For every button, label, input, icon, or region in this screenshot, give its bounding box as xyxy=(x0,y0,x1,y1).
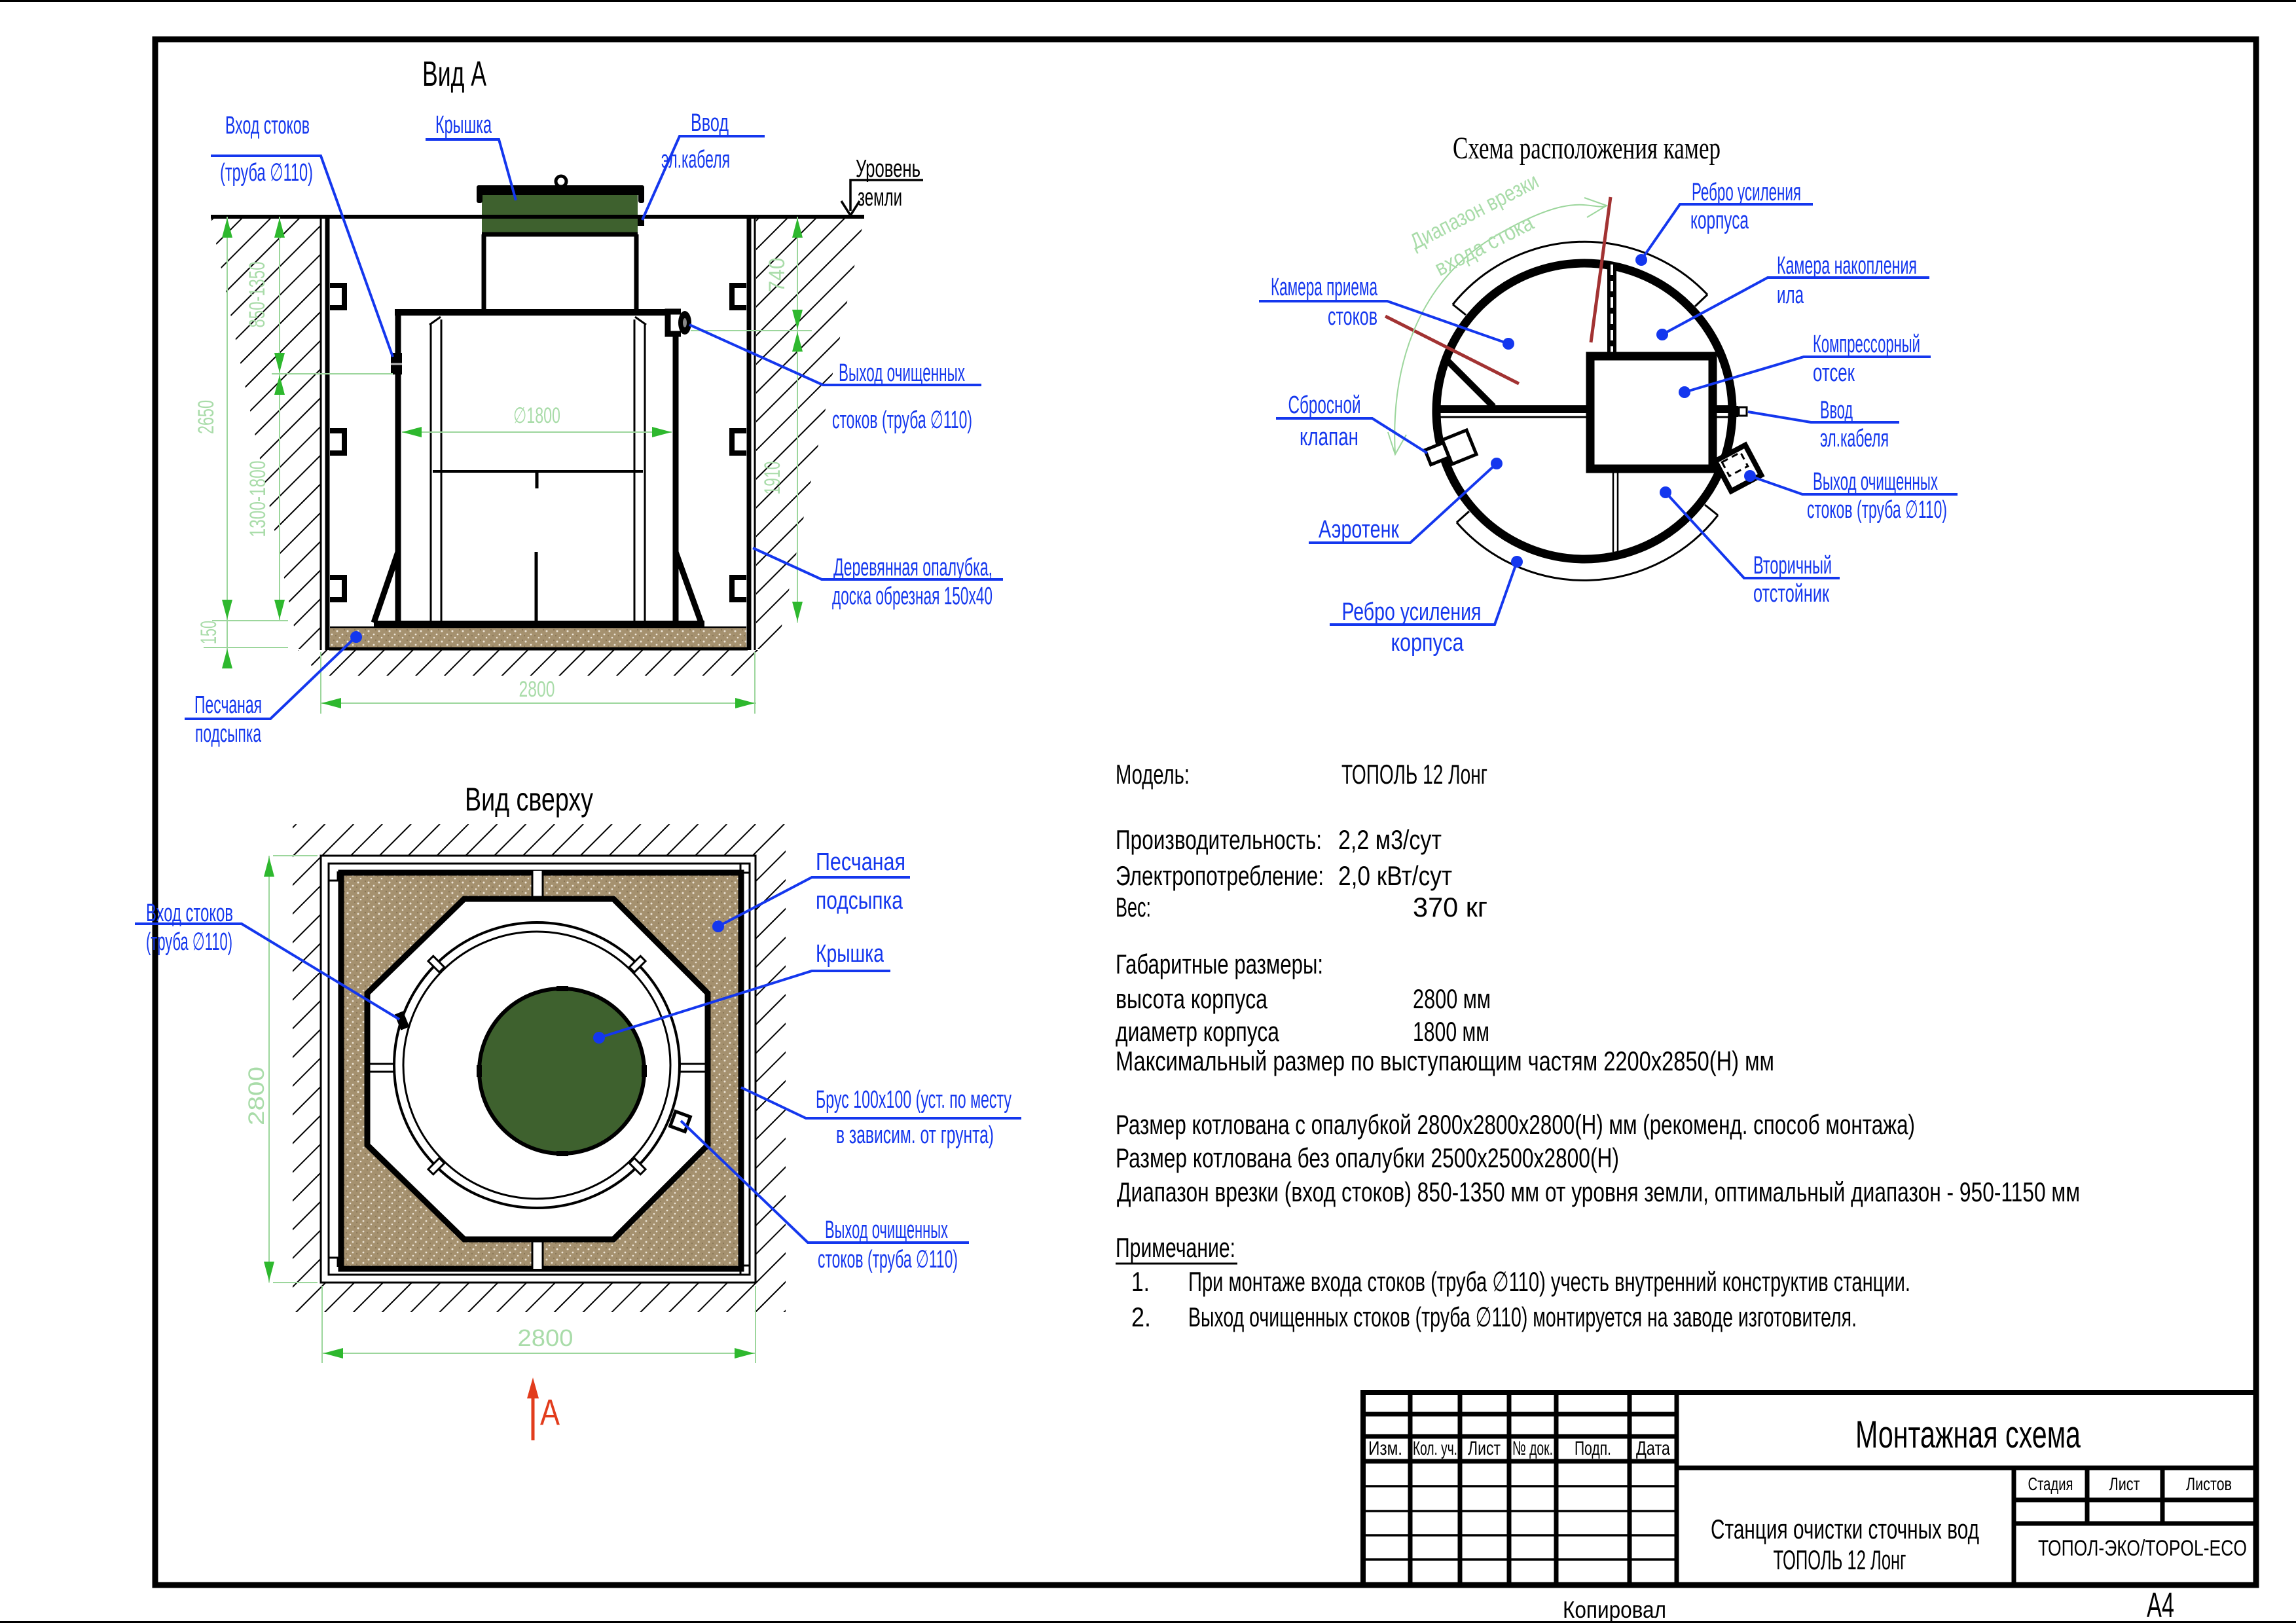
svg-text:740: 740 xyxy=(765,258,790,293)
svg-text:Аэротенк: Аэротенк xyxy=(1319,516,1399,543)
svg-text:Камера накопления: Камера накопления xyxy=(1777,252,1917,280)
svg-text:1910: 1910 xyxy=(760,462,785,495)
svg-text:Ввод: Ввод xyxy=(691,109,729,137)
svg-text:Вход стоков: Вход стоков xyxy=(225,112,310,139)
svg-text:2,2 м3/сут: 2,2 м3/сут xyxy=(1338,824,1442,855)
svg-text:подсыпка: подсыпка xyxy=(195,720,262,748)
svg-text:Изм.: Изм. xyxy=(1368,1438,1402,1459)
svg-text:Модель:: Модель: xyxy=(1116,759,1190,790)
svg-text:высота корпуса: высота корпуса xyxy=(1116,983,1267,1014)
svg-text:Сбросной: Сбросной xyxy=(1288,392,1361,419)
svg-text:Ребро усиления: Ребро усиления xyxy=(1692,179,1801,206)
svg-text:2800: 2800 xyxy=(244,1067,269,1125)
svg-text:А4: А4 xyxy=(2147,1586,2174,1623)
svg-text:Вес:: Вес: xyxy=(1116,892,1151,922)
svg-text:Монтажная схема: Монтажная схема xyxy=(1855,1413,2081,1456)
svg-text:Примечание:: Примечание: xyxy=(1116,1232,1235,1263)
svg-text:2,0 кВт/сут: 2,0 кВт/сут xyxy=(1338,860,1452,891)
svg-text:Крышка: Крышка xyxy=(816,940,884,968)
svg-text:подсыпка: подсыпка xyxy=(816,887,903,915)
svg-text:эл.кабеля: эл.кабеля xyxy=(1820,425,1889,452)
svg-text:Вторичный: Вторичный xyxy=(1753,552,1832,579)
svg-text:Лист: Лист xyxy=(2109,1474,2140,1494)
svg-text:эл.кабеля: эл.кабеля xyxy=(661,146,730,173)
svg-text:Дата: Дата xyxy=(1636,1438,1670,1459)
svg-text:стоков (труба ∅110): стоков (труба ∅110) xyxy=(1807,496,1947,524)
svg-text:2650: 2650 xyxy=(194,400,219,434)
svg-text:Станция очистки сточных вод: Станция очистки сточных вод xyxy=(1711,1514,1979,1544)
svg-text:корпуса: корпуса xyxy=(1391,629,1465,657)
svg-text:№ док.: № док. xyxy=(1512,1438,1553,1459)
svg-text:Кол. уч.: Кол. уч. xyxy=(1413,1438,1457,1459)
svg-text:850-1350: 850-1350 xyxy=(245,262,270,328)
svg-text:стоков: стоков xyxy=(1328,303,1377,331)
svg-text:Схема расположения камер: Схема расположения камер xyxy=(1453,131,1721,166)
svg-text:земли: земли xyxy=(858,184,902,211)
svg-text:ТОПОЛ-ЭКО/TOPOL-ECO: ТОПОЛ-ЭКО/TOPOL-ECO xyxy=(2038,1536,2247,1561)
svg-text:Лист: Лист xyxy=(1468,1438,1501,1459)
svg-text:в зависим. от грунта): в зависим. от грунта) xyxy=(836,1122,994,1149)
svg-text:Производительность:: Производительность: xyxy=(1116,824,1322,855)
svg-text:Крышка: Крышка xyxy=(435,111,492,139)
svg-text:150: 150 xyxy=(196,621,221,644)
svg-text:Камера приема: Камера приема xyxy=(1271,274,1378,301)
svg-text:Копировал: Копировал xyxy=(1563,1596,1666,1623)
svg-text:Ребро усиления: Ребро усиления xyxy=(1342,598,1482,626)
svg-text:1.: 1. xyxy=(1131,1266,1150,1297)
svg-text:Выход очищенных: Выход очищенных xyxy=(839,359,965,387)
svg-text:Габаритные размеры:: Габаритные размеры: xyxy=(1116,949,1323,979)
svg-text:ила: ила xyxy=(1777,282,1804,309)
svg-text:2.: 2. xyxy=(1131,1302,1151,1332)
svg-text:2800: 2800 xyxy=(519,677,555,702)
svg-text:А: А xyxy=(540,1391,560,1432)
svg-text:клапан: клапан xyxy=(1300,424,1358,451)
svg-text:(труба ∅110): (труба ∅110) xyxy=(220,159,313,187)
svg-text:Выход очищенных стоков (труба: Выход очищенных стоков (труба ∅110) монт… xyxy=(1188,1302,1857,1332)
svg-text:Компрессорный: Компрессорный xyxy=(1813,331,1920,358)
svg-text:стоков (труба ∅110): стоков (труба ∅110) xyxy=(832,407,972,434)
svg-text:Стадия: Стадия xyxy=(2028,1474,2073,1494)
svg-text:Уровень: Уровень xyxy=(856,155,920,183)
svg-text:Ввод: Ввод xyxy=(1820,397,1853,424)
svg-text:Вход стоков: Вход стоков xyxy=(146,900,233,927)
svg-text:При монтаже входа стоков (тру: При монтаже входа стоков (труба ∅110) уч… xyxy=(1188,1266,1910,1297)
svg-text:2800 мм: 2800 мм xyxy=(1413,983,1491,1014)
svg-text:Листов: Листов xyxy=(2186,1474,2232,1494)
svg-text:∅1800: ∅1800 xyxy=(513,403,560,428)
svg-text:отстойник: отстойник xyxy=(1753,580,1829,608)
svg-text:370 кг: 370 кг xyxy=(1413,892,1487,922)
svg-text:Максимальный размер по выступа: Максимальный размер по выступающим частя… xyxy=(1116,1046,1774,1076)
svg-text:Песчаная: Песчаная xyxy=(194,691,262,719)
svg-text:Диапазон врезки (вход стоков): Диапазон врезки (вход стоков) 850-1350 м… xyxy=(1117,1176,2080,1207)
svg-text:Размер котлована с опалубкой 2: Размер котлована с опалубкой 2800х2800х2… xyxy=(1116,1109,1915,1140)
svg-text:Подп.: Подп. xyxy=(1575,1438,1611,1459)
svg-text:Вид А: Вид А xyxy=(422,54,486,94)
svg-text:Деревянная опалубка,: Деревянная опалубка, xyxy=(833,554,993,581)
svg-text:Песчаная: Песчаная xyxy=(816,848,905,876)
svg-text:Брус 100х100 (уст. по месту: Брус 100х100 (уст. по месту xyxy=(816,1086,1011,1114)
svg-text:доска обрезная 150х40: доска обрезная 150х40 xyxy=(832,583,993,610)
svg-text:Выход очищенных: Выход очищенных xyxy=(825,1216,948,1244)
svg-text:2800: 2800 xyxy=(518,1324,574,1351)
svg-text:Вид сверху: Вид сверху xyxy=(465,781,593,818)
svg-text:Электропотребление:: Электропотребление: xyxy=(1116,860,1324,891)
svg-text:корпуса: корпуса xyxy=(1690,207,1749,234)
svg-text:Выход очищенных: Выход очищенных xyxy=(1813,468,1938,496)
svg-text:отсек: отсек xyxy=(1813,359,1855,387)
svg-text:Размер котлована без опалубки: Размер котлована без опалубки 2500х2500х… xyxy=(1116,1142,1619,1173)
svg-text:1800 мм: 1800 мм xyxy=(1413,1016,1489,1047)
svg-text:1300-1800: 1300-1800 xyxy=(246,461,270,538)
svg-text:(труба ∅110): (труба ∅110) xyxy=(146,928,232,956)
svg-text:ТОПОЛЬ 12 Лонг: ТОПОЛЬ 12 Лонг xyxy=(1774,1544,1906,1575)
svg-text:диаметр корпуса: диаметр корпуса xyxy=(1116,1016,1279,1047)
svg-text:стоков (труба ∅110): стоков (труба ∅110) xyxy=(818,1246,958,1273)
svg-text:ТОПОЛЬ 12 Лонг: ТОПОЛЬ 12 Лонг xyxy=(1341,759,1487,790)
